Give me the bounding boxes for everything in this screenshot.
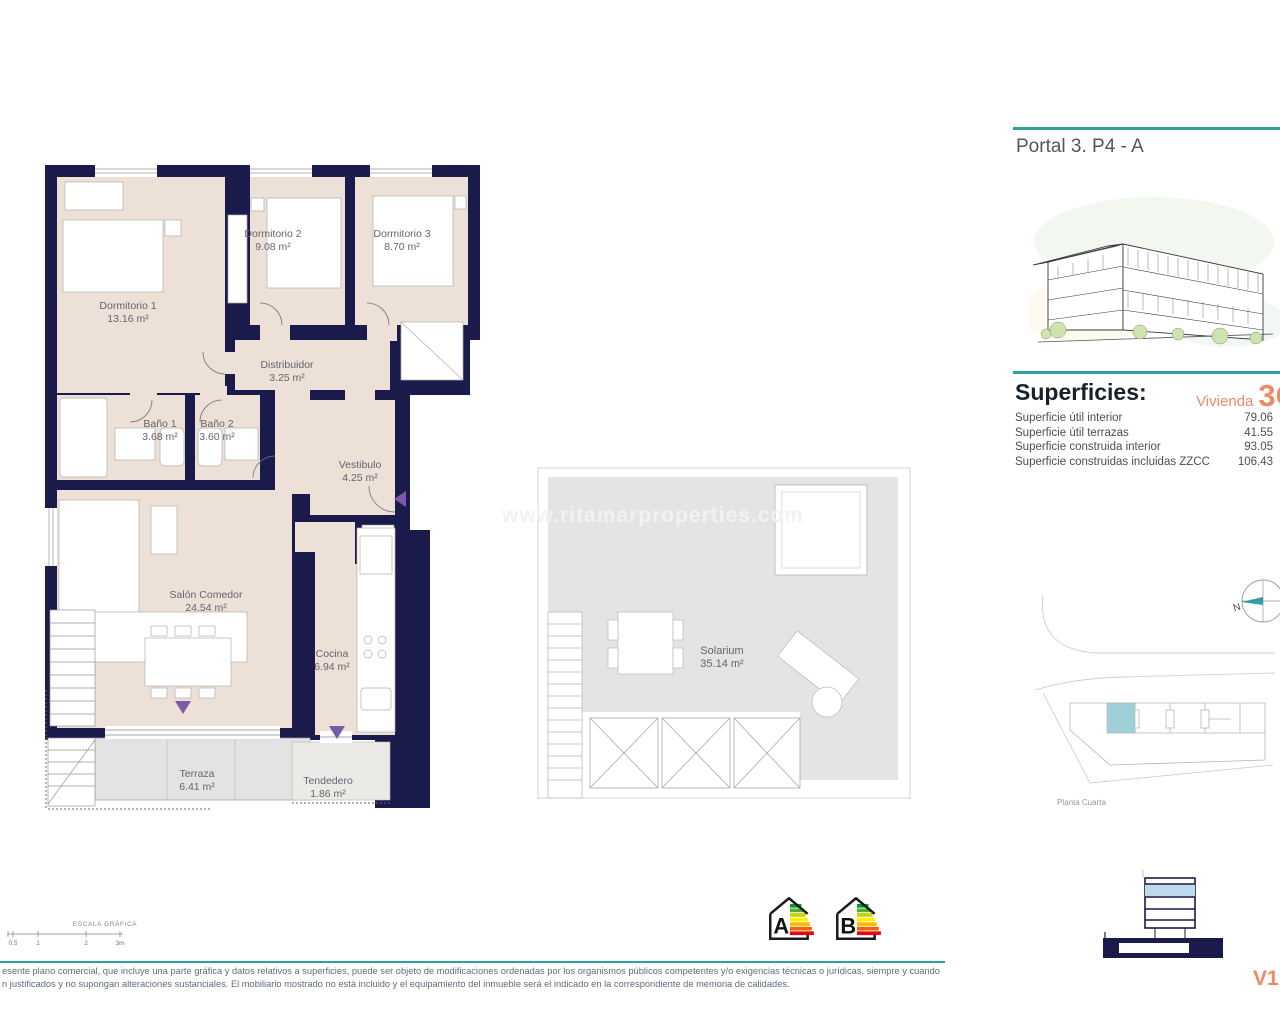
scale-bar: ESCALA GRÁFICA 0.5 1 2 3m [5, 912, 155, 952]
energy-rating-icon-a: A [763, 892, 817, 946]
elevation-svg [1095, 862, 1280, 967]
site-building-block [1070, 703, 1265, 765]
scale-tick-1: 1 [36, 940, 40, 947]
scale-tick-3: 3m [115, 940, 124, 947]
floor-plan-svg [45, 160, 485, 812]
building-sketch [1028, 182, 1280, 362]
solarium-skylights [590, 718, 800, 788]
solarium-table [608, 612, 683, 674]
superficies-divider [1013, 371, 1280, 374]
superficies-title: Superficies: [1015, 379, 1147, 406]
stairs-interior [50, 610, 95, 726]
superficies-row: Superficie construidas incluidas ZZCC 10… [1015, 455, 1273, 470]
elevation-podium [1103, 932, 1223, 958]
superficies-row: Superficie útil terrazas 41.55 [1015, 426, 1273, 441]
superficies-row: Superficie útil interior 79.06 [1015, 411, 1273, 426]
vivienda-badge: Vivienda 3C [1158, 378, 1280, 414]
footer-disclaimer-line1: esente plano comercial, que incluye una … [2, 966, 940, 976]
vivienda-code: 3C [1258, 378, 1280, 414]
solarium-jacuzzi [775, 485, 867, 575]
stairs-exterior [48, 738, 95, 806]
plan-sheet: { "header": { "title": "Portal 3. P4 - A… [0, 0, 1280, 1024]
site-plan-caption: Planta Cuarta [1057, 798, 1106, 807]
superficies-row: Superficie construida interior 93.05 [1015, 440, 1273, 455]
energy-rating-icon-b: B [830, 892, 884, 946]
scale-tick-0: 0.5 [8, 940, 17, 947]
terrace-sliding-door [105, 726, 280, 739]
compass-north-label: N [1232, 602, 1242, 615]
compass: N [1232, 580, 1280, 622]
solarium-stairs [548, 612, 582, 798]
footer-disclaimer-line2: n justificados y no supongan alteracione… [2, 979, 790, 989]
version-label: V1 [1253, 967, 1279, 991]
page-title: Portal 3. P4 - A [1016, 136, 1144, 158]
footer-divider [0, 961, 945, 963]
site-roads [1035, 595, 1275, 783]
vivienda-label: Vivienda [1196, 393, 1253, 410]
energy-letter-a: A [773, 914, 789, 939]
watermark: www.ritamarproperties.com [502, 504, 804, 528]
terrace [95, 738, 310, 800]
tendedero-floor [292, 742, 390, 800]
site-plan-svg: N Planta Cuarta [1035, 555, 1280, 815]
scale-bar-title: ESCALA GRÁFICA [73, 919, 137, 928]
site-unit-highlight [1107, 703, 1135, 733]
elevation-tower [1143, 870, 1195, 938]
superficies-table: Superficie útil interior 79.06 Superfici… [1015, 411, 1273, 469]
header-divider-top [1013, 127, 1280, 130]
energy-letter-b: B [840, 914, 856, 939]
scale-tick-2: 2 [84, 940, 88, 947]
